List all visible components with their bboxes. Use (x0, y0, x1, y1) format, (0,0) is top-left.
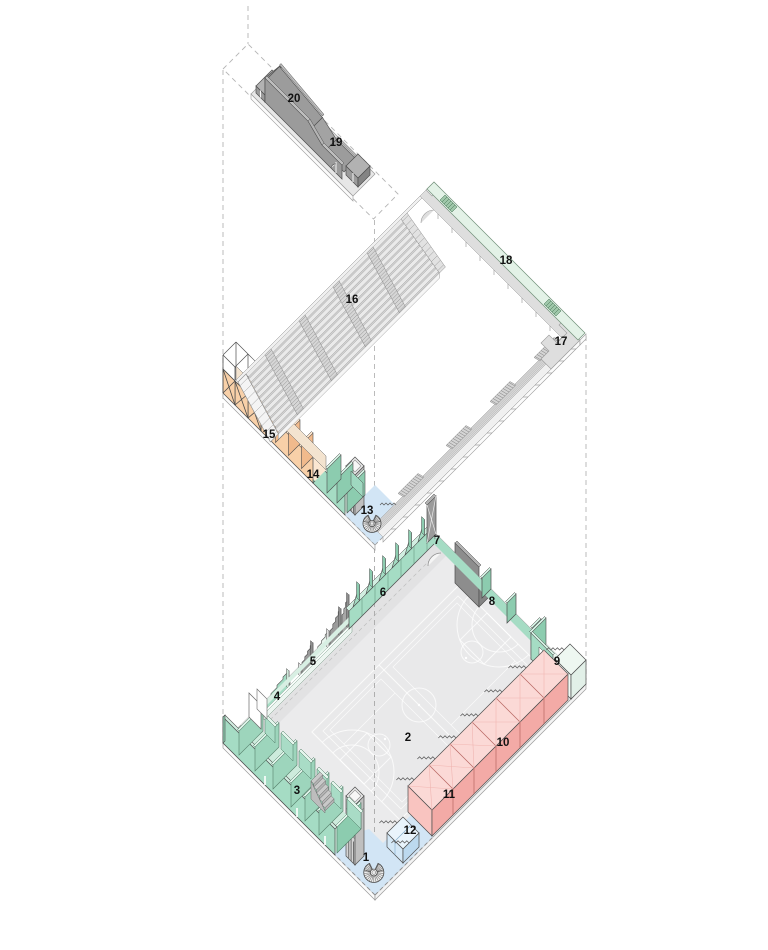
svg-text:8: 8 (489, 596, 496, 608)
svg-text:15: 15 (263, 429, 276, 441)
svg-text:17: 17 (555, 336, 568, 348)
svg-text:4: 4 (274, 691, 281, 703)
svg-text:20: 20 (288, 93, 301, 105)
svg-text:3: 3 (294, 785, 300, 797)
svg-text:6: 6 (380, 587, 386, 599)
svg-text:18: 18 (500, 255, 513, 267)
svg-text:7: 7 (434, 535, 440, 547)
svg-text:19: 19 (330, 137, 343, 149)
svg-text:11: 11 (443, 789, 456, 801)
svg-text:1: 1 (363, 852, 370, 864)
svg-text:12: 12 (404, 825, 417, 837)
svg-text:5: 5 (310, 656, 317, 668)
svg-text:14: 14 (307, 469, 320, 481)
svg-text:10: 10 (497, 737, 510, 749)
svg-text:13: 13 (361, 505, 374, 517)
svg-text:16: 16 (346, 294, 359, 306)
svg-text:9: 9 (554, 656, 560, 668)
svg-text:2: 2 (405, 732, 411, 744)
